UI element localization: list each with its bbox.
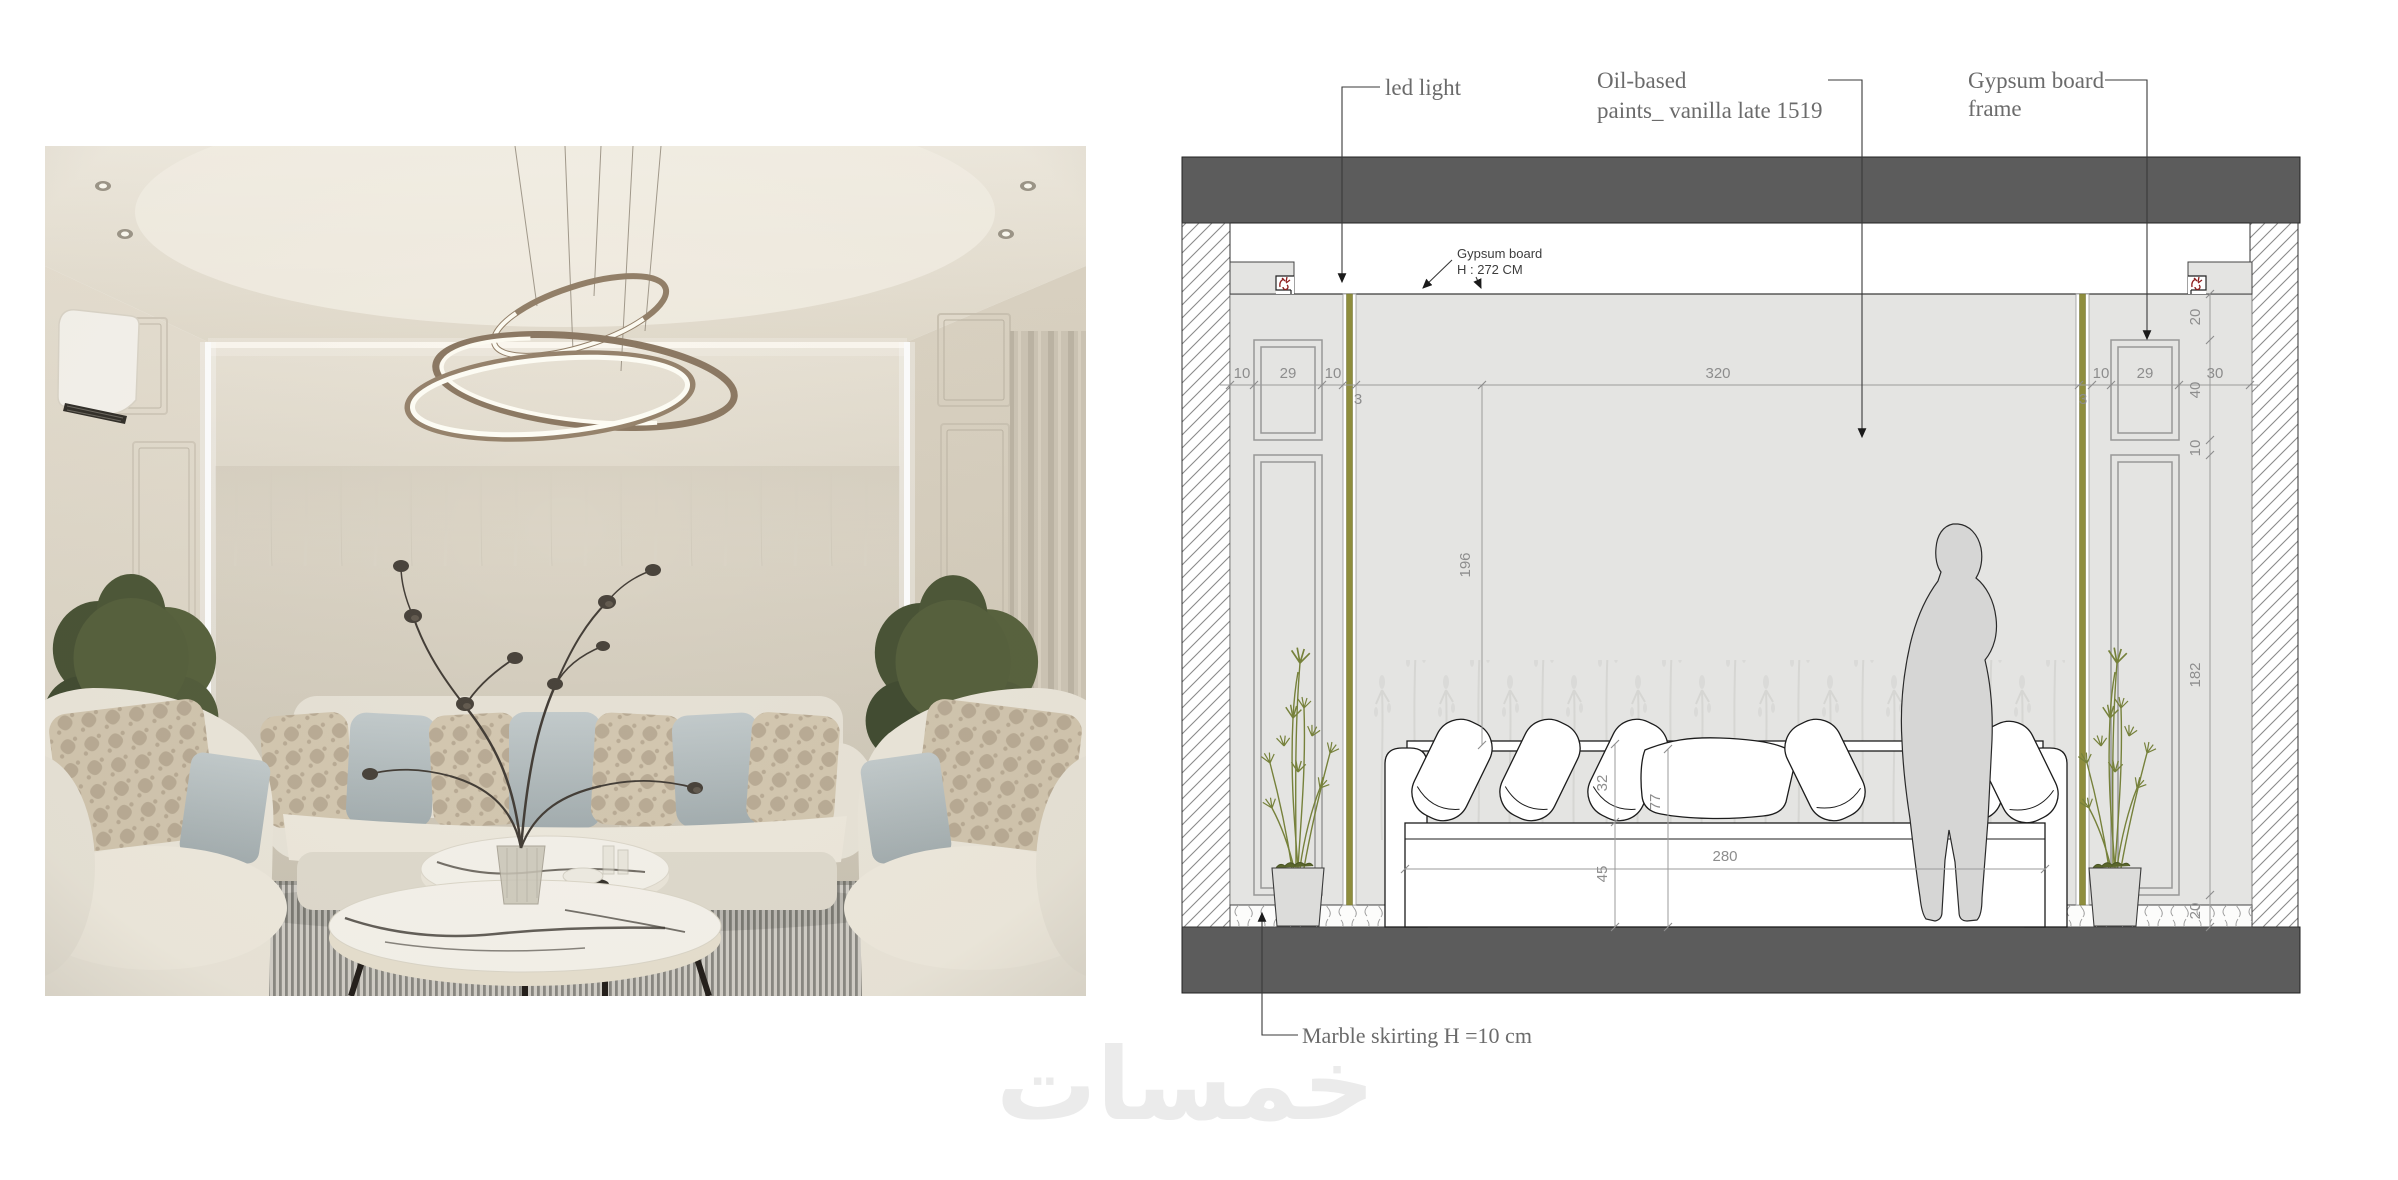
led-strip-left-elevation [1343,294,1356,905]
dim-v20a: 20 [2187,309,2204,326]
watermark: خمسات [1035,1030,1375,1140]
presentation-board: 10 29 10 3 320 10 29 30 3 196 20 40 10 1… [0,0,2398,1180]
dim-wall-height: 196 [1457,552,1474,577]
dim-v182: 182 [2187,662,2204,687]
floor-slab [1182,927,2300,993]
label-gypsum-note-2: H : 272 CM [1457,262,1523,277]
dim-v40: 40 [2187,382,2204,399]
label-gypsum-frame-1: Gypsum board [1968,68,2105,93]
dim-back-cushion: 32 [1594,775,1611,792]
label-oil-based-1: Oil-based [1597,68,1687,93]
render-photo [45,146,1086,996]
dim-left-3: 3 [1354,391,1362,408]
gypsum-step-left [1230,262,1294,294]
dim-right-10: 10 [2093,365,2110,382]
vignette [45,146,1086,996]
dim-right-3: 3 [2079,391,2087,408]
label-gypsum-note-1: Gypsum board [1457,246,1542,261]
dim-sofa-height: 77 [1647,794,1664,811]
dim-v10: 10 [2187,440,2204,457]
dim-left-29: 29 [1280,365,1297,382]
dim-right-29: 29 [2137,365,2154,382]
gypsum-step-right [2188,262,2252,294]
dim-right-30: 30 [2207,365,2224,382]
wall-hatch-left [1182,223,1230,927]
dim-left-10a: 10 [1234,365,1251,382]
ceiling-slab [1182,157,2300,223]
dim-sofa-width: 280 [1712,848,1737,865]
dim-left-10b: 10 [1325,365,1342,382]
section-drawing: 10 29 10 3 320 10 29 30 3 196 20 40 10 1… [1180,60,2398,1070]
wall-hatch-right [2250,223,2298,927]
dim-seat-height: 45 [1594,866,1611,883]
label-gypsum-frame-2: frame [1968,96,2022,121]
dim-v20b: 20 [2187,903,2204,920]
label-oil-based-2: paints_ vanilla late 1519 [1597,98,1822,123]
label-led-light: led light [1385,75,1462,100]
dim-wall-width: 320 [1705,365,1730,382]
